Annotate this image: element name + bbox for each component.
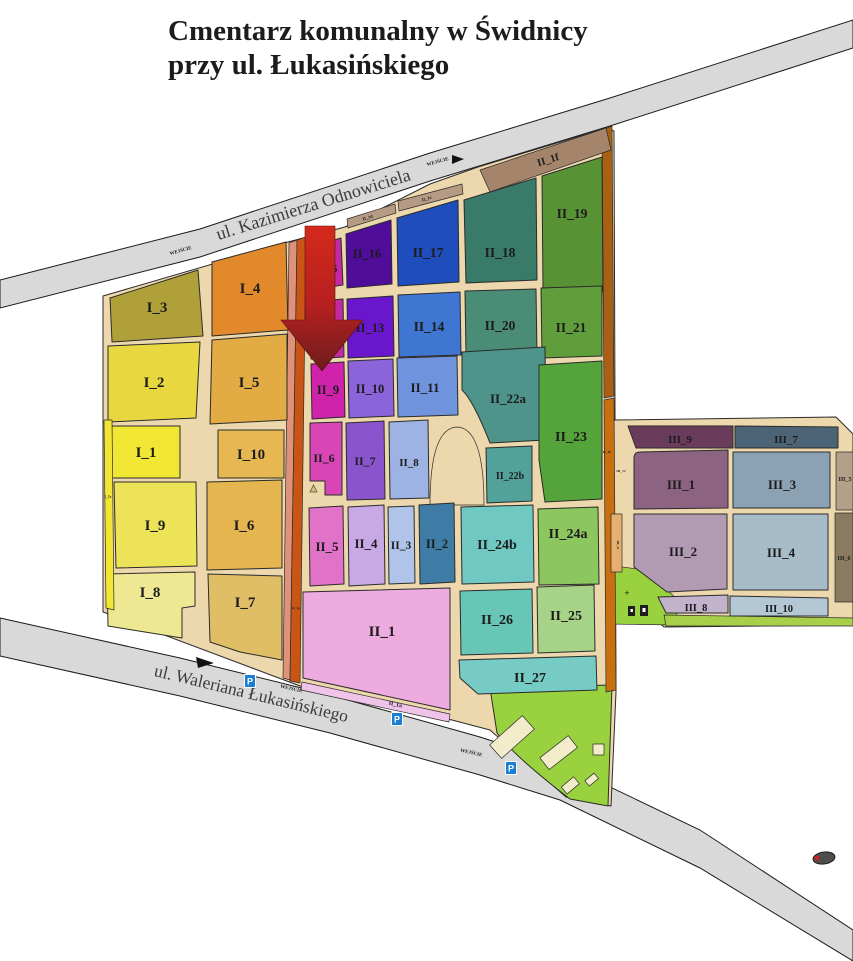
section-II-20-label: II_20	[485, 318, 516, 333]
section-I-10-label: I_10	[237, 447, 265, 463]
section-I-7-label: I_7	[235, 595, 256, 611]
section-II-24b-label: II_24b	[477, 538, 517, 553]
cross-marker: +	[624, 588, 629, 598]
oval-marker	[812, 851, 835, 866]
strip-II-1g-label: II_1g	[292, 606, 300, 610]
section-III-1-label: III_1	[667, 477, 695, 492]
chapel-building-4	[593, 744, 604, 755]
parking-marker-2: P	[392, 713, 403, 726]
section-I-5-label: I_5	[239, 375, 260, 391]
section-I-9-label: I_9	[145, 518, 166, 534]
section-I-4-label: I_4	[240, 281, 261, 297]
section-I-3-label: I_3	[147, 300, 168, 316]
section-II-26-label: II_26	[481, 613, 513, 628]
cemetery-map: Cmentarz komunalny w Świdnicy przy ul. Ł…	[0, 0, 853, 961]
section-II-4-label: II_4	[354, 536, 378, 551]
section-I-1c-label: I_1c	[104, 494, 112, 499]
section-III-6-label: III_6	[837, 556, 850, 562]
section-II-9-label: II_9	[317, 383, 339, 397]
section-II-7-label: II_7	[354, 454, 375, 468]
section-II-17-label: II_17	[413, 245, 444, 260]
section-I-8-label: I_8	[140, 585, 161, 601]
section-III-2-label: III_2	[669, 544, 697, 559]
section-II-1-label: II_1	[369, 624, 396, 640]
section-II-14-label: II_14	[414, 319, 445, 334]
section-II-27-label: II_27	[514, 671, 546, 686]
border-strip-upper	[602, 126, 614, 398]
section-I-6-label: I_6	[234, 518, 255, 534]
section-II-22b-label: II_22b	[496, 471, 525, 482]
map-title-line2: przy ul. Łukasińskiego	[168, 49, 449, 81]
section-II-24a-area	[538, 507, 599, 585]
section-II-22a-label: II_22a	[490, 391, 527, 406]
section-III-5-label: III_5	[838, 477, 851, 483]
section-II-6-label: II_6	[313, 451, 334, 465]
section-III-4-label: III_4	[767, 545, 796, 560]
section-I-2-label: I_2	[144, 375, 165, 391]
section-II-2-label: II_2	[426, 537, 448, 551]
section-III-7-label: III_7	[774, 434, 798, 446]
section-II-11-label: II_11	[411, 380, 440, 395]
strip-II-1b-label: II_1b	[603, 450, 611, 454]
section-II-16-label: II_16	[353, 247, 381, 261]
section-II-3-label: II_3	[391, 540, 412, 552]
facility-icon-1-dot	[631, 609, 634, 612]
facility-icon-2-dot	[643, 608, 646, 612]
section-II-24a-label: II_24a	[549, 527, 588, 542]
parking-marker-3-letter: P	[508, 764, 514, 774]
parking-marker-1: P	[245, 675, 256, 688]
section-II-10-label: II_10	[356, 382, 384, 396]
section-II-25-label: II_25	[550, 609, 582, 624]
map-title-line1: Cmentarz komunalny w Świdnicy	[168, 14, 588, 47]
section-I-8-area	[107, 572, 195, 638]
section-I-1c-area	[104, 420, 114, 610]
section-II-8-label: II_8	[399, 457, 419, 469]
parking-marker-3: P	[506, 762, 517, 775]
section-III-10-label: III_10	[765, 604, 793, 615]
strip-III-11-label: III_11	[616, 540, 620, 549]
section-II-18-label: II_18	[485, 245, 516, 260]
parking-marker-1-letter: P	[247, 677, 253, 687]
section-II-23-label: II_23	[555, 430, 587, 445]
section-III-3-label: III_3	[768, 477, 797, 492]
section-II-5-label: II_5	[315, 539, 339, 554]
section-III-9-label: III_9	[668, 434, 692, 446]
section-II-21-label: II_21	[556, 320, 587, 335]
strip-III-12-label: III_12	[616, 469, 626, 473]
section-II-19-area	[542, 157, 603, 292]
cemetery-map-page: Cmentarz komunalny w Świdnicy przy ul. Ł…	[0, 0, 853, 961]
section-II-19-label: II_19	[557, 206, 588, 221]
section-I-1-label: I_1	[136, 445, 157, 461]
parking-marker-2-letter: P	[394, 715, 400, 725]
section-III-8-label: III_8	[685, 603, 708, 614]
